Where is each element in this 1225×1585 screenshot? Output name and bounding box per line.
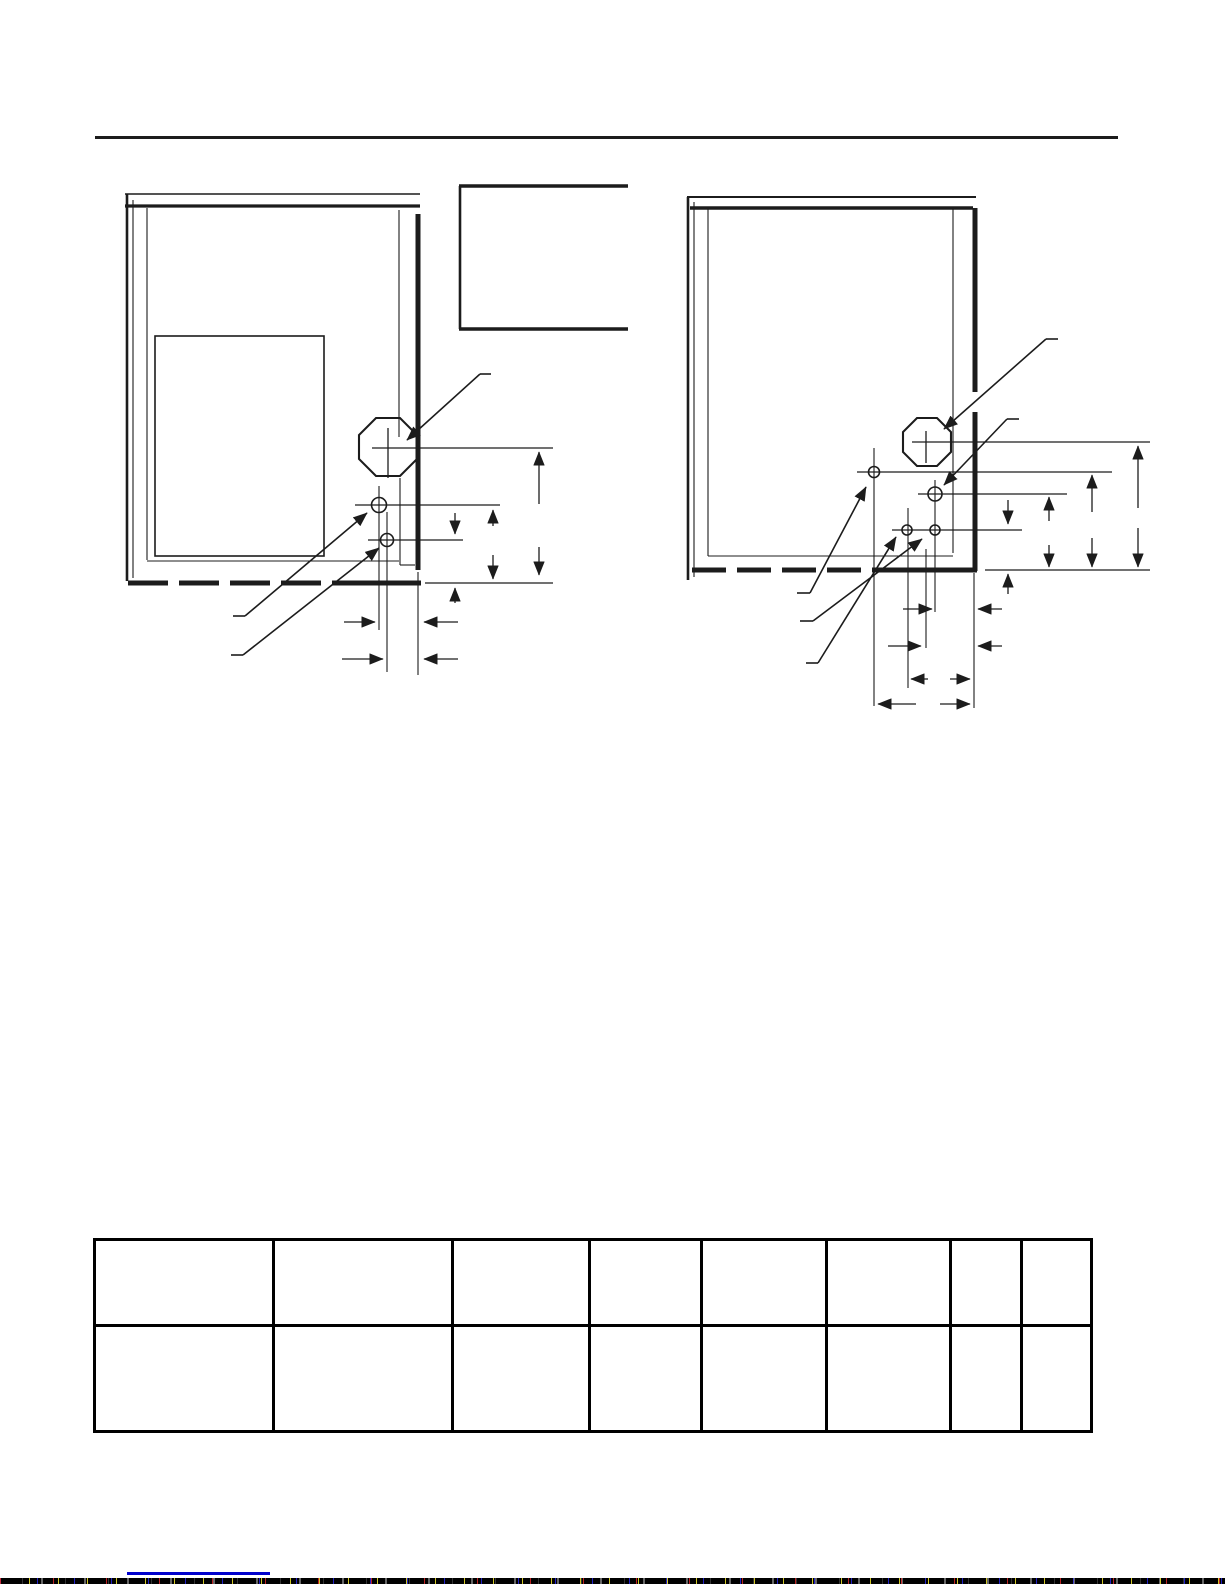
left-dimension-arrows: [342, 452, 539, 659]
callout-box: [459, 186, 628, 329]
table-row: [95, 1240, 1092, 1326]
table-cell: [590, 1240, 702, 1326]
table-cell: [95, 1326, 274, 1432]
right-cabinet-outline: [687, 197, 977, 580]
table-cell: [826, 1240, 951, 1326]
table-cell: [274, 1240, 452, 1326]
spec-table-body: [95, 1240, 1092, 1432]
left-panel-figure: [125, 194, 553, 675]
right-centerlines: [874, 448, 974, 708]
table-cell: [590, 1326, 702, 1432]
table-cell: [702, 1326, 827, 1432]
right-dimension-reference-lines: [857, 442, 1150, 570]
table-cell: [826, 1326, 951, 1432]
door-panel-outline: [155, 336, 324, 556]
footer-link-underline[interactable]: [127, 1572, 270, 1575]
table-cell: [1022, 1326, 1092, 1432]
right-leader-arrows: [797, 339, 1058, 663]
table-row: [95, 1326, 1092, 1432]
left-leader-arrows: [231, 374, 491, 655]
table-cell: [951, 1240, 1022, 1326]
left-cabinet-outline: [125, 194, 421, 583]
table-cell: [274, 1326, 452, 1432]
scan-noise-strip: [0, 1578, 1225, 1584]
right-dimension-arrows: [878, 446, 1138, 704]
document-page: [0, 0, 1225, 1585]
table-cell: [702, 1240, 827, 1326]
table-cell: [95, 1240, 274, 1326]
table-cell: [452, 1240, 590, 1326]
spec-table: [93, 1238, 1093, 1433]
left-dimension-reference-lines: [355, 448, 553, 583]
table-cell: [452, 1326, 590, 1432]
table-cell: [951, 1326, 1022, 1432]
table-cell: [1022, 1240, 1092, 1326]
right-panel-figure: [687, 197, 1150, 708]
